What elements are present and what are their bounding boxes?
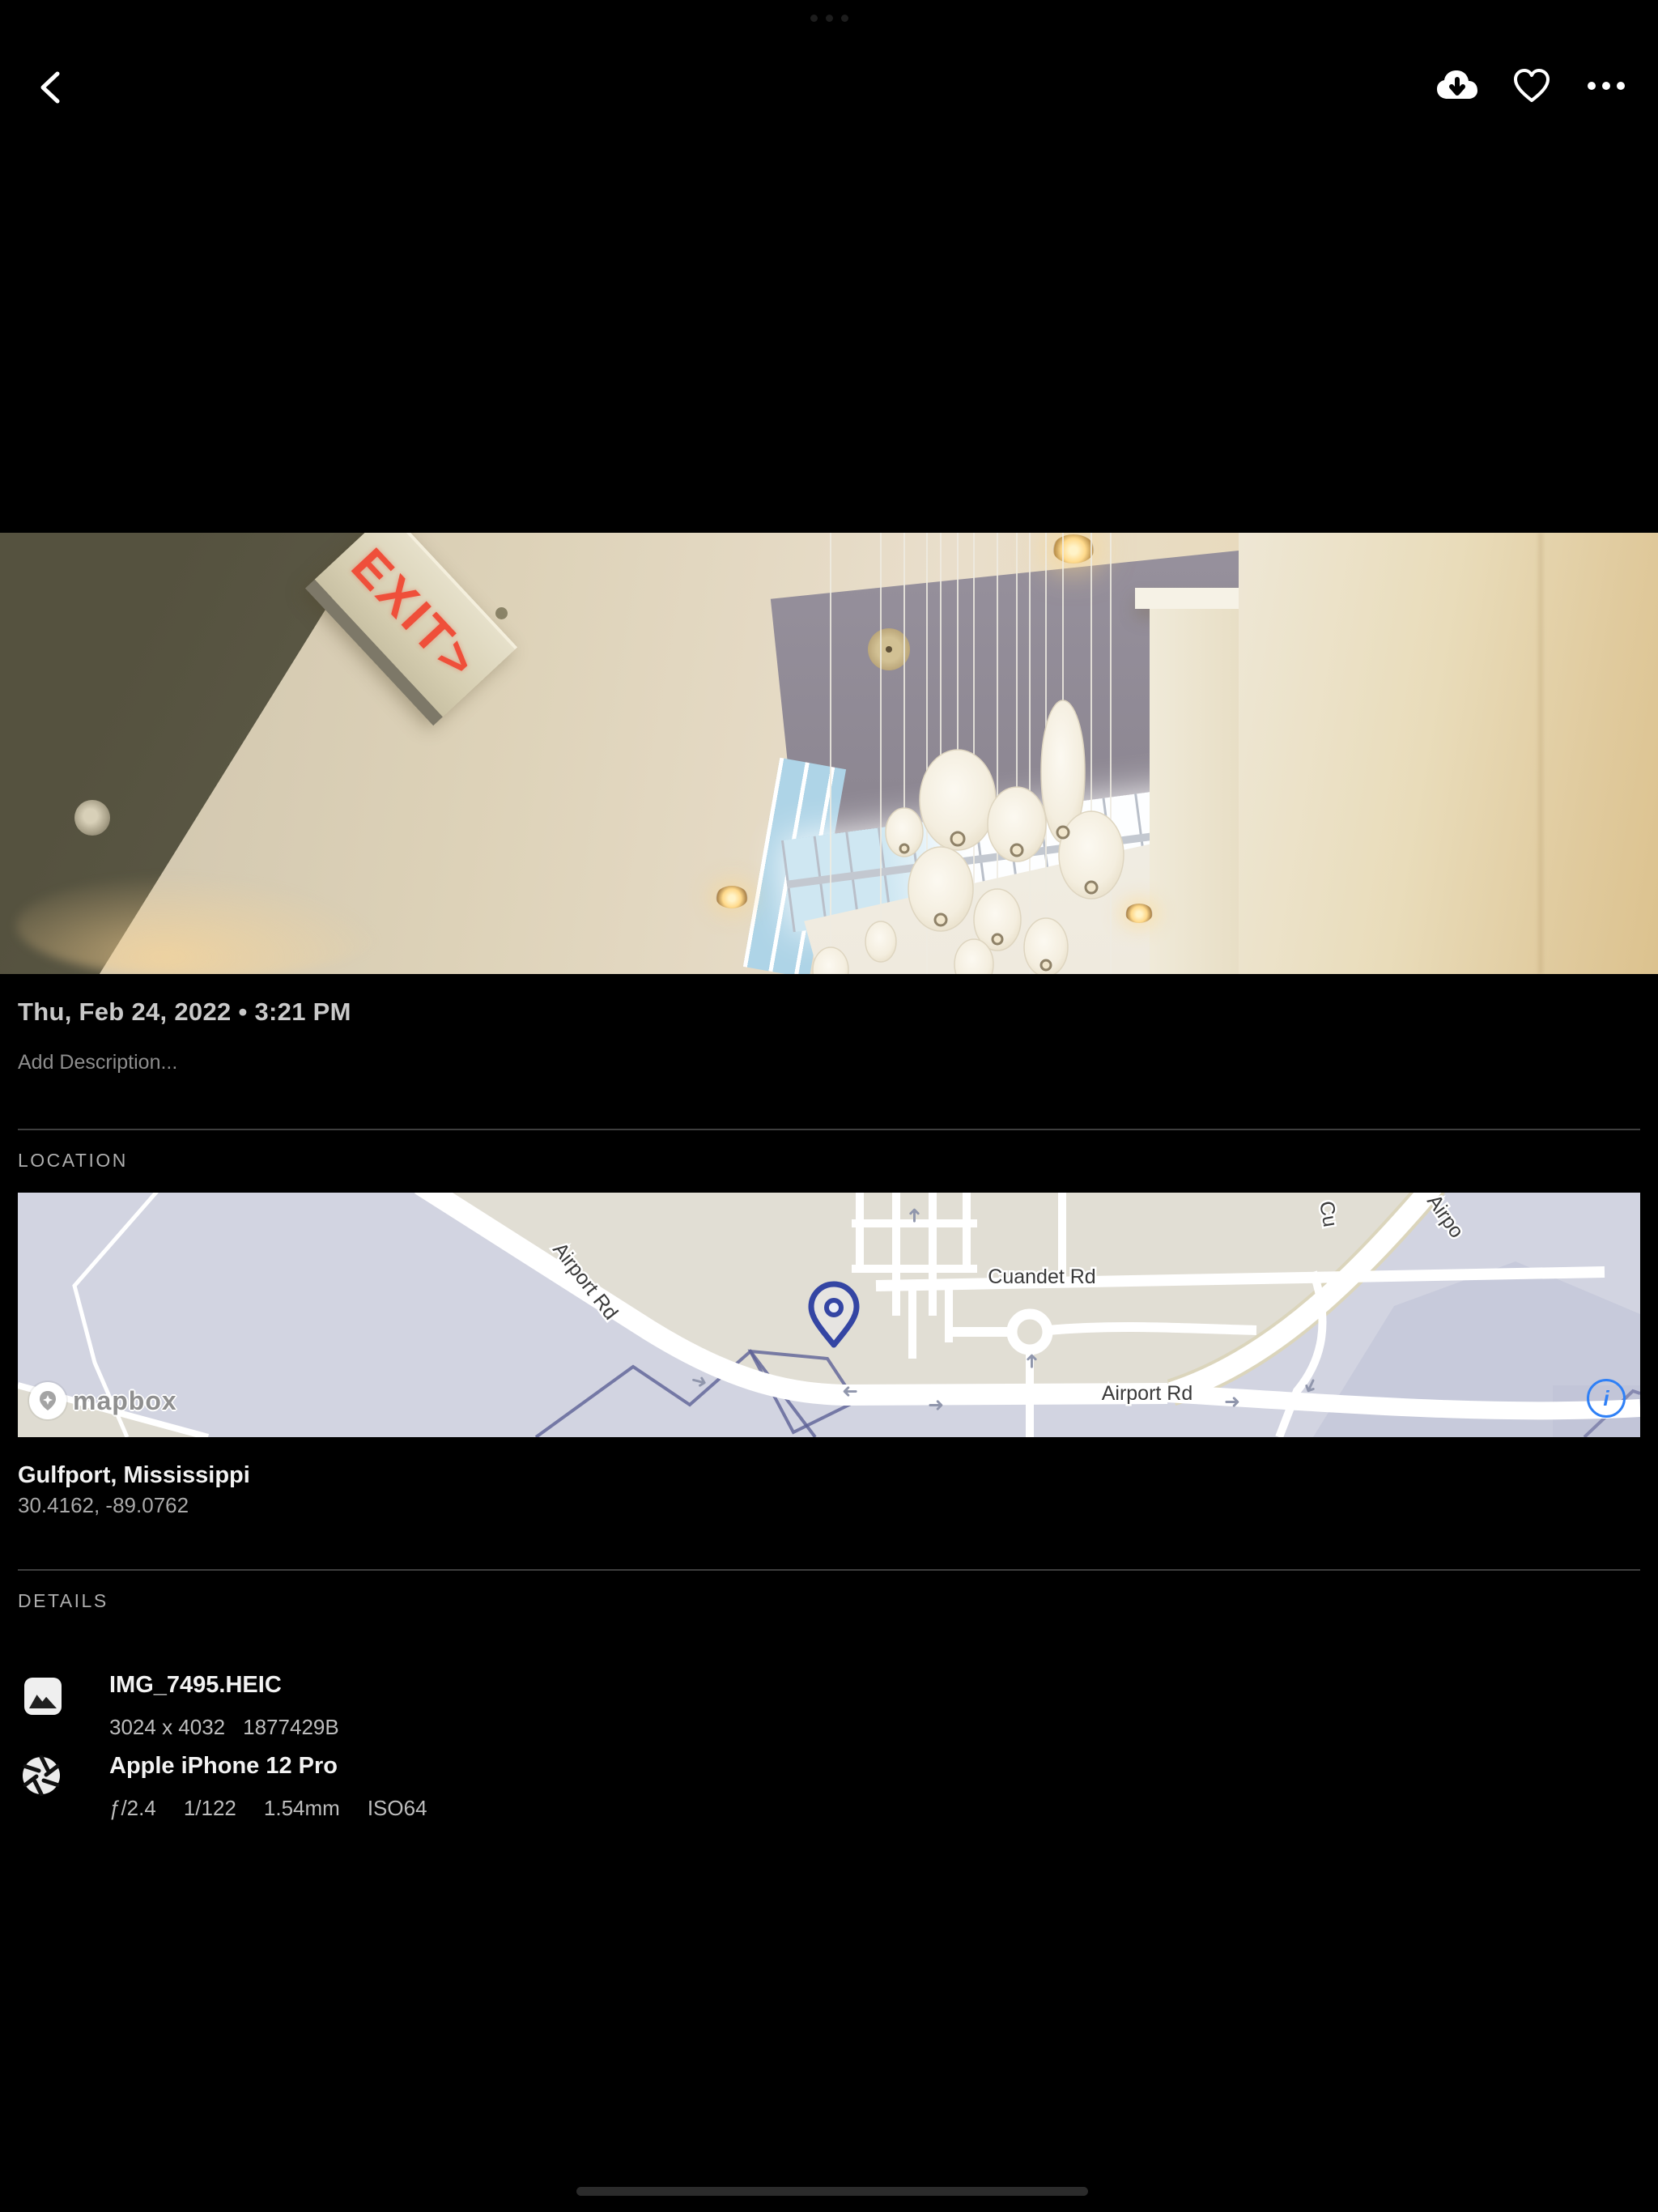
camera-exif: ƒ/2.4 1/122 1.54mm ISO64 bbox=[109, 1796, 427, 1821]
exif-aperture: ƒ/2.4 bbox=[109, 1796, 156, 1821]
image-file-icon bbox=[24, 1678, 62, 1715]
photo-viewer[interactable]: EXIT> bbox=[0, 533, 1658, 974]
svg-text:➜: ➜ bbox=[1021, 1353, 1043, 1369]
description-field[interactable]: Add Description... bbox=[18, 1051, 177, 1074]
home-indicator[interactable] bbox=[576, 2187, 1088, 2196]
mapbox-wordmark: mapbox bbox=[73, 1386, 177, 1416]
map-label-airport-rd: Airport Rd bbox=[1102, 1382, 1193, 1405]
location-map[interactable]: ➜ ➜ ➜ ➜ ➜ ➜ ➜ Airport Rd Cuandet Rd Airp… bbox=[18, 1193, 1640, 1437]
camera-name: Apple iPhone 12 Pro bbox=[109, 1753, 338, 1780]
cloud-download-icon bbox=[1436, 70, 1478, 102]
ellipsis-icon bbox=[1587, 81, 1626, 91]
map-info-button[interactable]: i bbox=[1587, 1379, 1626, 1418]
multitasking-dots bbox=[0, 15, 1658, 22]
map-label-cuandet-partial: Cu bbox=[1315, 1199, 1341, 1228]
file-dimensions: 3024 x 4032 bbox=[109, 1715, 225, 1740]
file-size: 1877429B bbox=[243, 1715, 339, 1740]
mapbox-logo-icon bbox=[29, 1382, 66, 1419]
heart-icon bbox=[1513, 69, 1550, 103]
favorite-button[interactable] bbox=[1509, 63, 1554, 108]
svg-text:➜: ➜ bbox=[928, 1394, 944, 1416]
file-name: IMG_7495.HEIC bbox=[109, 1672, 282, 1699]
location-coordinates: 30.4162, -89.0762 bbox=[18, 1493, 189, 1518]
svg-text:➜: ➜ bbox=[903, 1207, 925, 1223]
more-options-button[interactable] bbox=[1584, 63, 1629, 108]
map-label-cuandet-rd: Cuandet Rd bbox=[988, 1266, 1095, 1288]
location-place: Gulfport, Mississippi bbox=[18, 1462, 250, 1489]
section-divider bbox=[18, 1569, 1640, 1571]
location-section-label: LOCATION bbox=[18, 1150, 128, 1172]
section-divider bbox=[18, 1129, 1640, 1130]
pendant-lamps bbox=[0, 533, 1658, 974]
camera-aperture-icon bbox=[21, 1755, 62, 1800]
back-button[interactable] bbox=[28, 65, 73, 110]
exif-iso: ISO64 bbox=[368, 1796, 427, 1821]
mapbox-attribution[interactable]: mapbox bbox=[29, 1382, 177, 1419]
svg-text:➜: ➜ bbox=[1224, 1391, 1240, 1413]
details-section-label: DETAILS bbox=[18, 1590, 108, 1612]
photo-date: Thu, Feb 24, 2022 • 3:21 PM bbox=[18, 998, 351, 1027]
svg-text:➜: ➜ bbox=[842, 1380, 858, 1402]
map-canvas: ➜ ➜ ➜ ➜ ➜ ➜ ➜ Airport Rd Cuandet Rd Airp… bbox=[18, 1193, 1640, 1437]
file-meta: 3024 x 4032 1877429B bbox=[109, 1715, 339, 1740]
download-button[interactable] bbox=[1435, 63, 1480, 108]
chevron-left-icon bbox=[36, 70, 64, 105]
exif-shutter: 1/122 bbox=[184, 1796, 236, 1821]
info-icon: i bbox=[1603, 1386, 1609, 1411]
exif-focal-length: 1.54mm bbox=[264, 1796, 340, 1821]
